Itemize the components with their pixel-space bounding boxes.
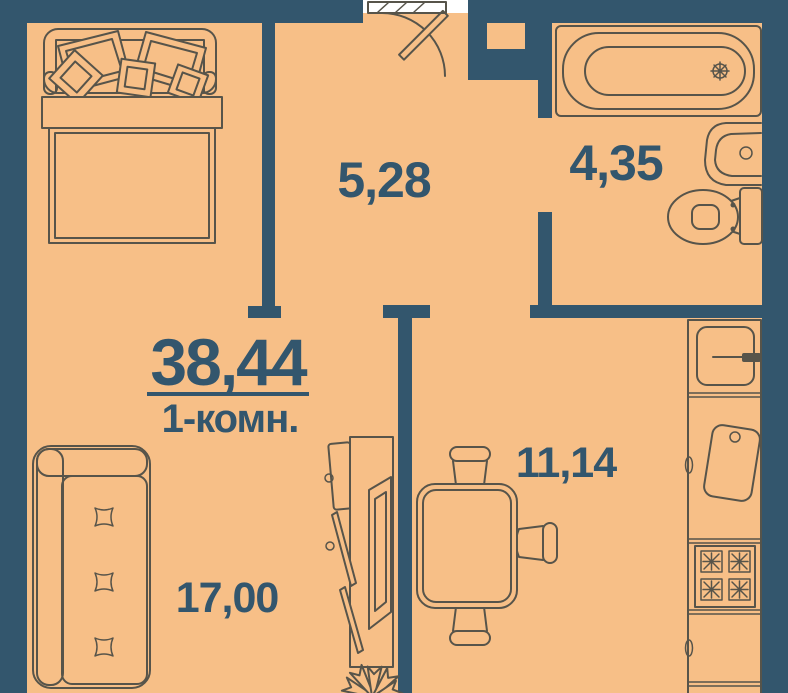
summary-divider bbox=[147, 392, 309, 396]
bed-icon bbox=[42, 29, 222, 243]
sofa-icon bbox=[33, 446, 150, 688]
floor-plan-drawing: 5,28 4,35 11,14 17,00 38,44 1-комн. bbox=[0, 0, 788, 693]
bathtub-drain bbox=[711, 62, 729, 80]
wall-left bbox=[0, 0, 27, 693]
wall-right bbox=[762, 0, 788, 693]
chair-top bbox=[450, 447, 490, 488]
area-label-living-room: 17,00 bbox=[176, 574, 279, 622]
wall-living-kitchen-cap bbox=[383, 305, 430, 318]
wall-bathroom-left-upper bbox=[538, 80, 552, 118]
wall-bathroom-bottom bbox=[530, 305, 762, 318]
chair-right bbox=[516, 523, 557, 563]
wall-bedroom-divider-cap bbox=[248, 306, 281, 318]
area-label-kitchen-dining: 11,14 bbox=[516, 439, 617, 487]
entry-shaft-niche bbox=[487, 23, 525, 49]
area-label-bathroom: 4,35 bbox=[569, 135, 663, 191]
total-area-label: 38,44 bbox=[150, 325, 307, 399]
layout-type-label: 1-комн. bbox=[162, 397, 299, 441]
wall-living-kitchen bbox=[398, 318, 412, 693]
area-label-hallway: 5,28 bbox=[337, 152, 431, 208]
wall-top-right bbox=[551, 0, 762, 23]
floor-plan: 5,28 4,35 11,14 17,00 38,44 1-комн. bbox=[0, 0, 788, 693]
wall-top-left bbox=[0, 0, 363, 23]
chair-bottom bbox=[450, 604, 490, 645]
wall-bathroom-left-lower bbox=[538, 212, 552, 306]
plan-summary: 38,44 1-комн. bbox=[147, 325, 309, 441]
wall-bedroom-divider bbox=[262, 23, 275, 308]
dining-table bbox=[417, 484, 517, 608]
